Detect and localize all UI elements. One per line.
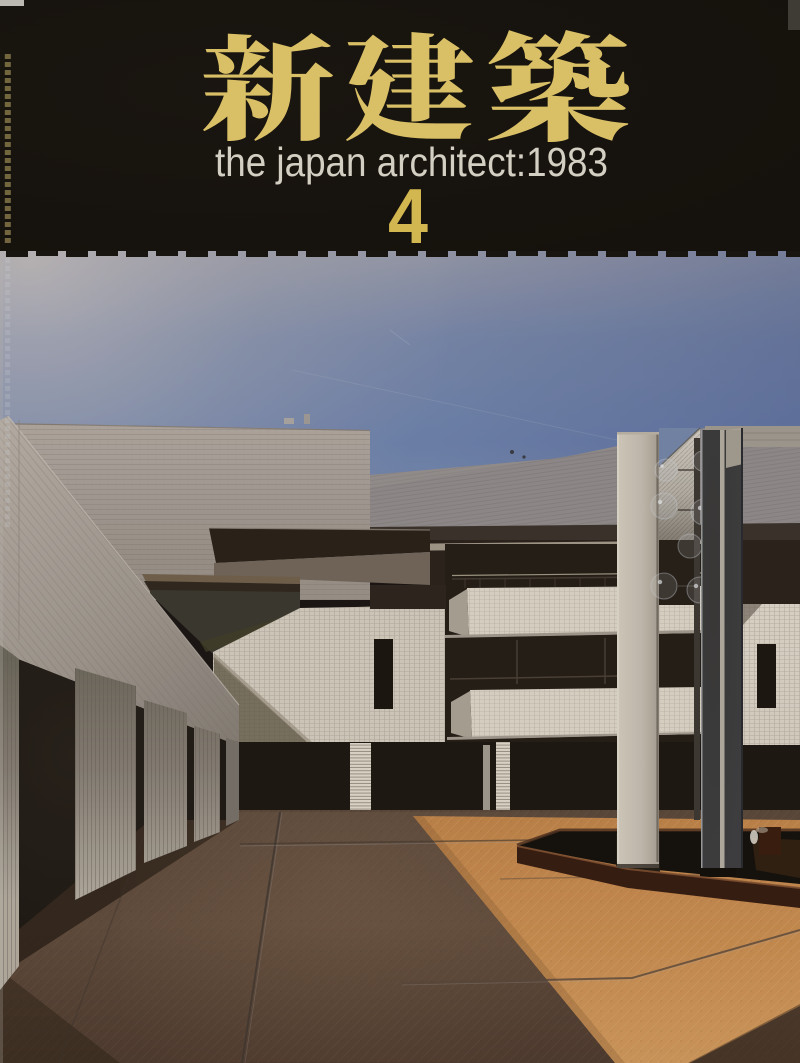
svg-text:4: 4 — [388, 172, 428, 260]
